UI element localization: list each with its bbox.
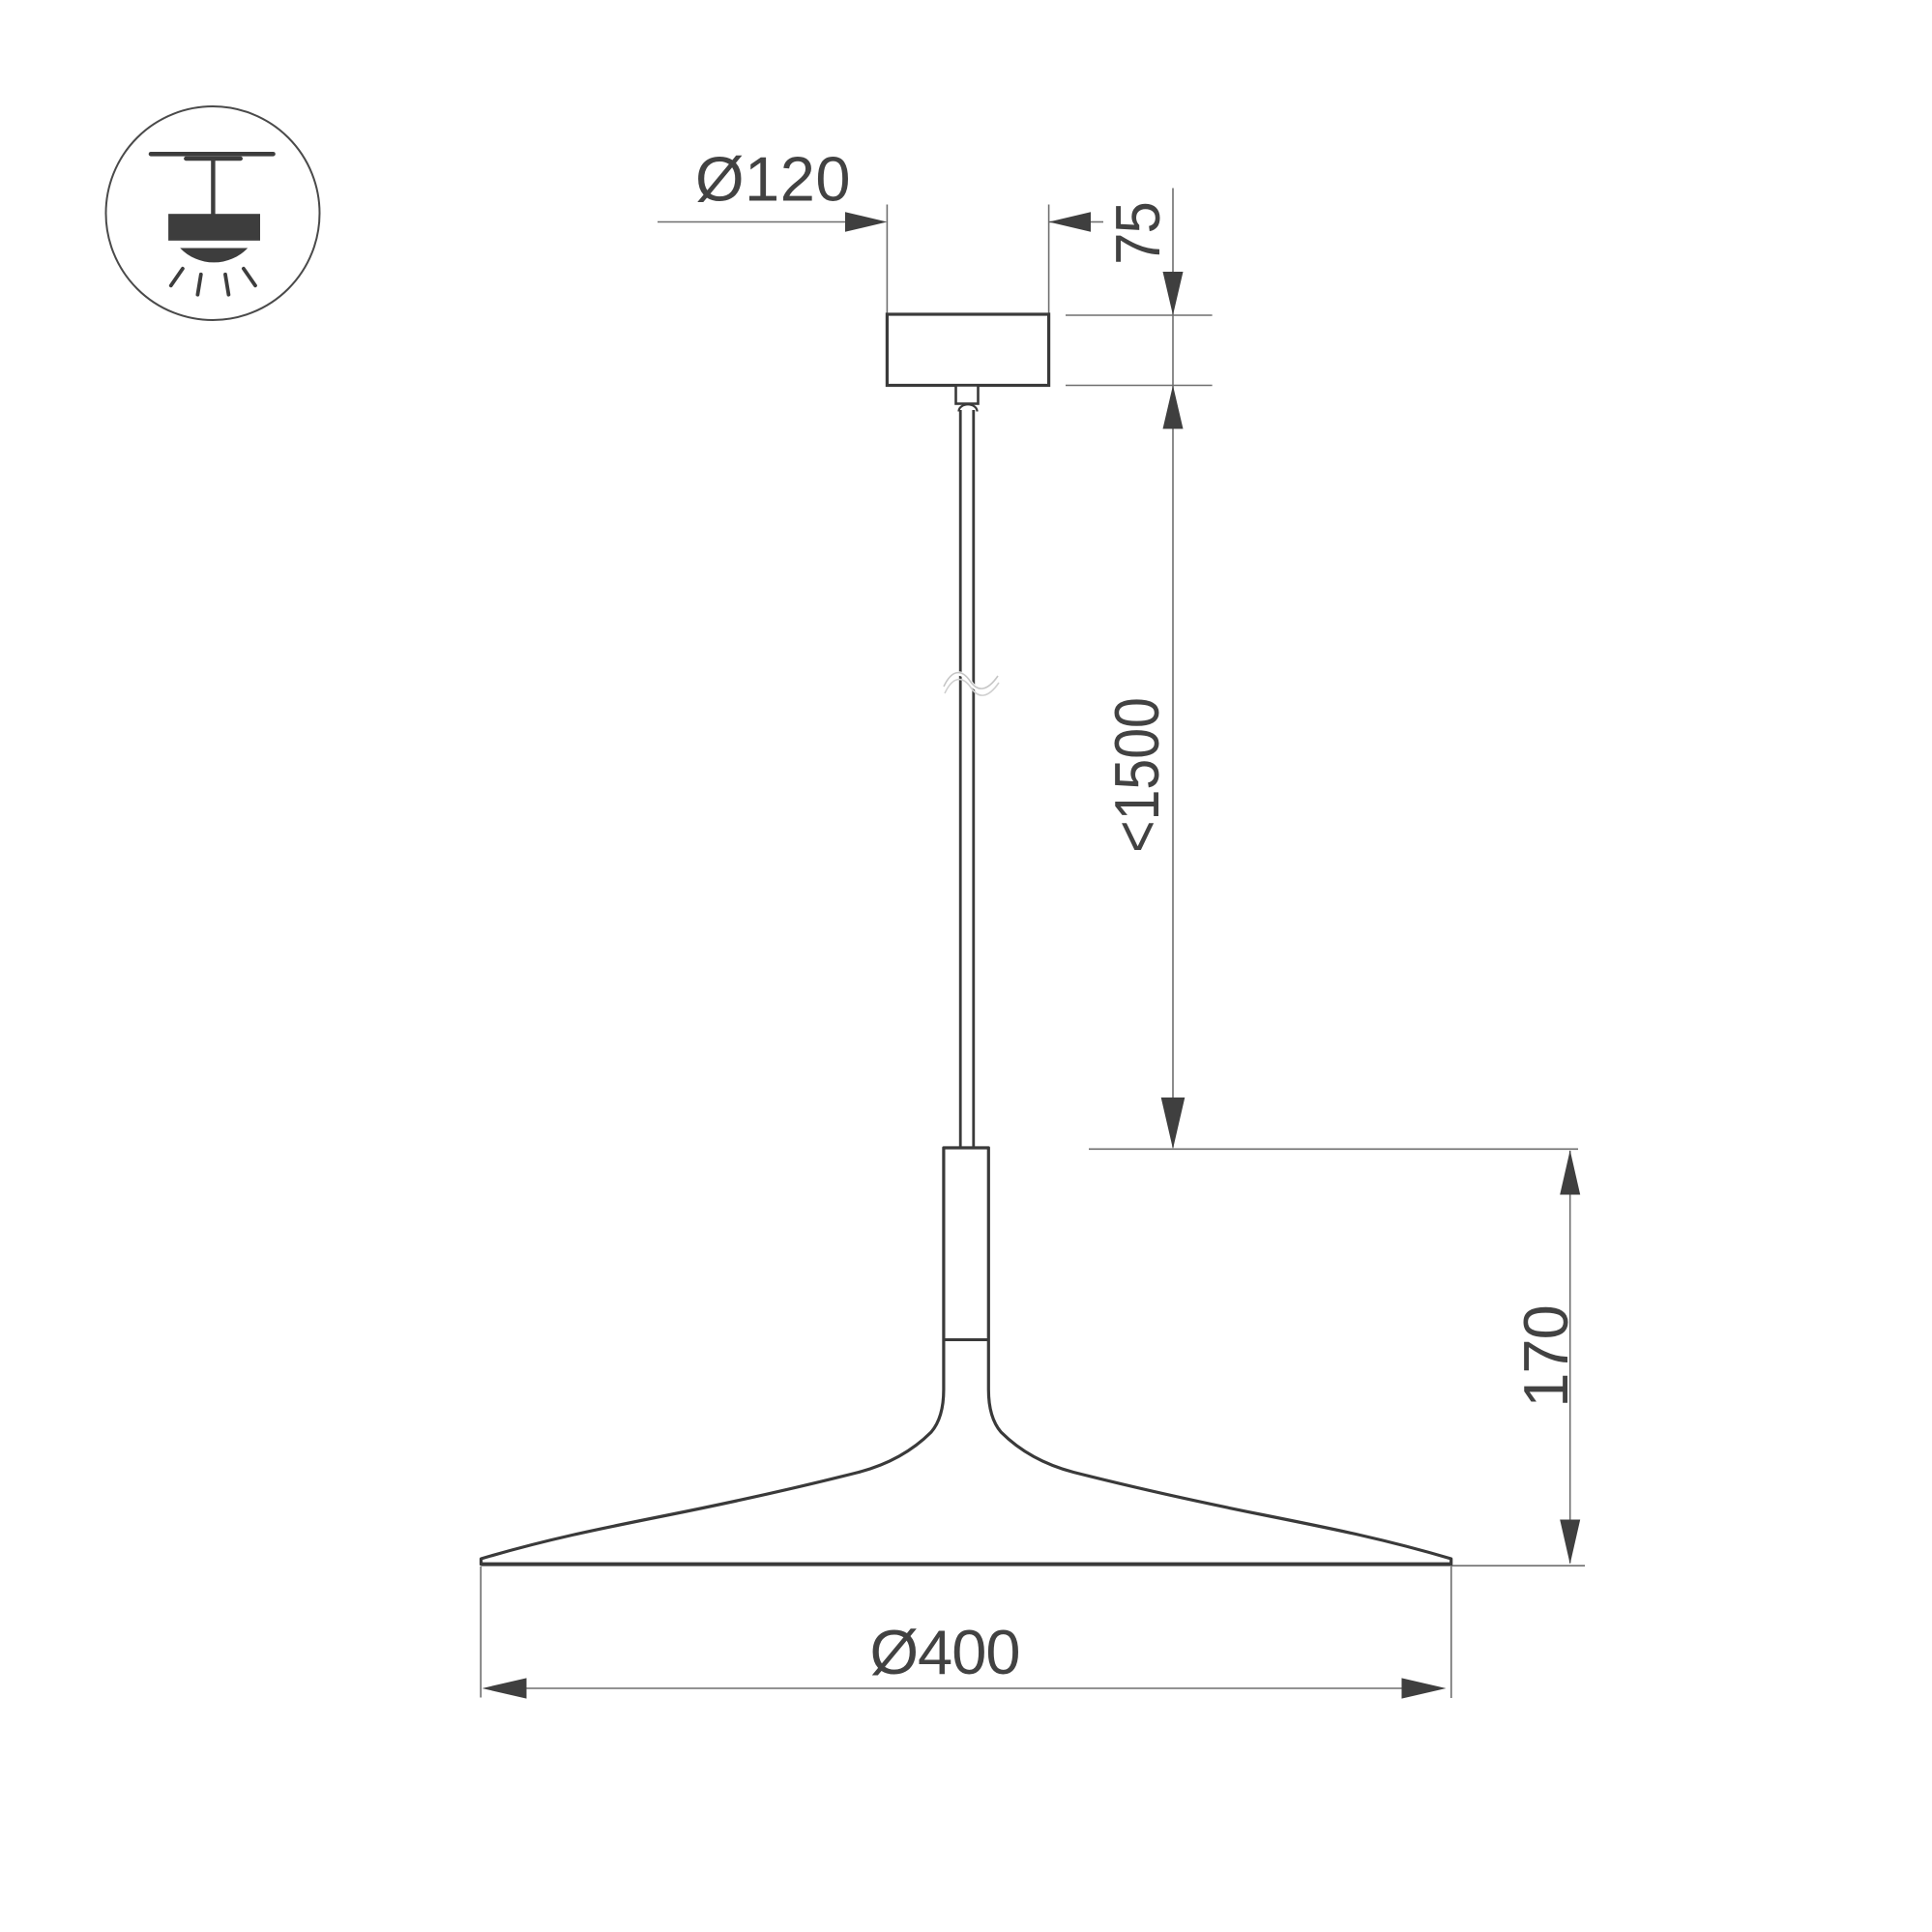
svg-text:Ø120: Ø120 bbox=[695, 144, 851, 215]
svg-text:75: 75 bbox=[1103, 202, 1174, 265]
svg-text:<1500: <1500 bbox=[1102, 697, 1172, 853]
svg-text:170: 170 bbox=[1510, 1305, 1581, 1407]
svg-text:Ø400: Ø400 bbox=[869, 1617, 1019, 1687]
